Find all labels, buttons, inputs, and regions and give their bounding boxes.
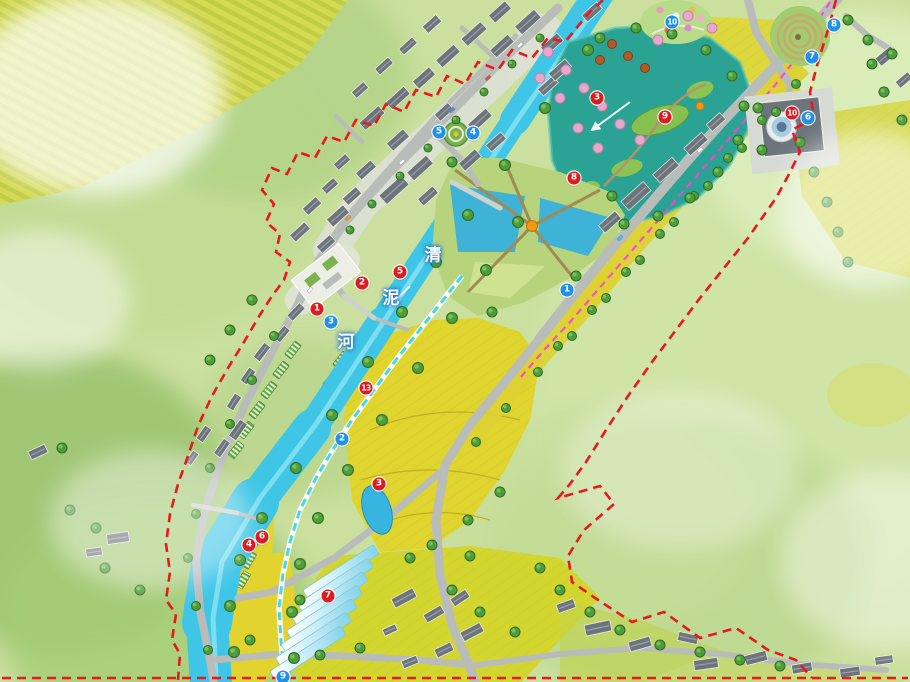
river-name-char-1: 清 <box>425 241 442 266</box>
blue-marker-5: 5 <box>433 126 446 139</box>
blue-marker-6: 6 <box>802 112 815 125</box>
river-name-char-3: 河 <box>338 328 355 353</box>
annotation-overlay: 清泥河 1253891013346710876541329 <box>0 0 910 682</box>
blue-marker-7: 7 <box>806 51 819 64</box>
blue-marker-4: 4 <box>467 127 480 140</box>
blue-marker-9: 9 <box>277 671 290 682</box>
blue-marker-2: 2 <box>336 433 349 446</box>
red-marker-6: 6 <box>256 531 269 544</box>
red-marker-3: 3 <box>373 478 386 491</box>
red-marker-13: 13 <box>360 382 373 395</box>
river-name-char-2: 泥 <box>383 284 400 309</box>
red-marker-10: 10 <box>786 107 799 120</box>
red-marker-1: 1 <box>311 303 324 316</box>
red-marker-2: 2 <box>356 277 369 290</box>
red-marker-5: 5 <box>394 266 407 279</box>
blue-marker-1: 1 <box>561 284 574 297</box>
red-marker-8: 8 <box>568 172 581 185</box>
blue-marker-3: 3 <box>325 316 338 329</box>
red-marker-7: 7 <box>322 590 335 603</box>
red-marker-3: 3 <box>591 92 604 105</box>
blue-marker-10: 10 <box>666 16 679 29</box>
blue-marker-8: 8 <box>828 19 841 32</box>
master-plan-map: 清泥河 1253891013346710876541329 <box>0 0 910 682</box>
red-marker-4: 4 <box>243 539 256 552</box>
red-marker-9: 9 <box>659 111 672 124</box>
